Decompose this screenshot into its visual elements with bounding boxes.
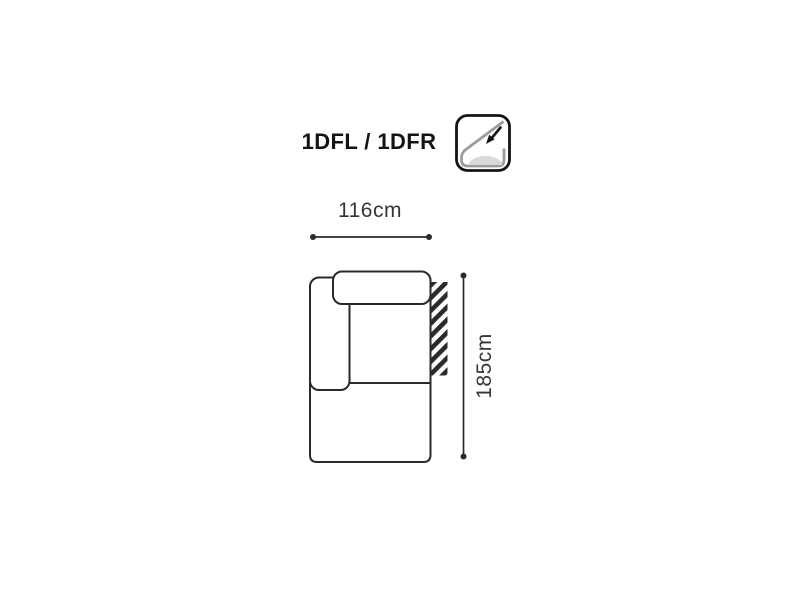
sofa-outline-group bbox=[310, 272, 431, 463]
ottoman-front bbox=[310, 383, 431, 462]
connection-hatch-band bbox=[432, 282, 448, 376]
width-endpoint-left bbox=[310, 234, 316, 240]
height-endpoint-bottom bbox=[461, 454, 467, 460]
width-endpoint-right bbox=[426, 234, 432, 240]
width-dimension-label: 116cm bbox=[338, 199, 402, 222]
sofa-top-view-diagram: 116cm 185cm bbox=[0, 0, 800, 600]
height-dimension-label: 185cm bbox=[473, 333, 496, 399]
height-endpoint-top bbox=[461, 273, 467, 279]
backrest bbox=[333, 272, 431, 305]
sofa-spec-sheet: 1DFL / 1DFR bbox=[0, 0, 800, 600]
